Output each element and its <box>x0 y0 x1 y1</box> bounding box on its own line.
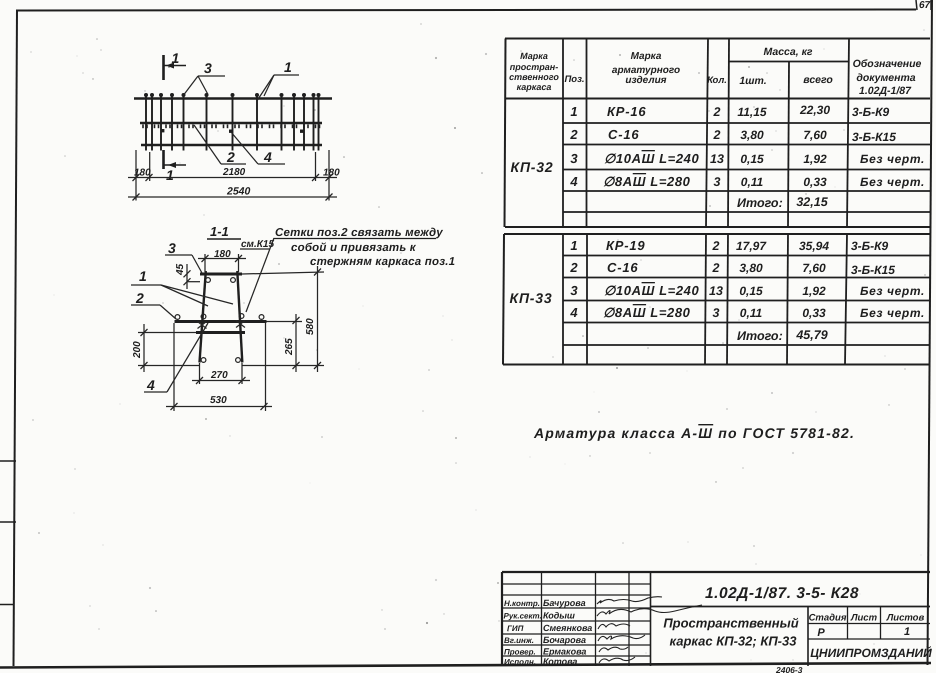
svg-text:580: 580 <box>305 318 316 335</box>
svg-text:КР-16: КР-16 <box>607 104 646 119</box>
svg-text:Без черт.: Без черт. <box>860 175 925 189</box>
svg-text:Кодыш: Кодыш <box>543 611 575 621</box>
svg-text:1,92: 1,92 <box>802 284 826 298</box>
svg-text:32,15: 32,15 <box>796 195 828 209</box>
svg-text:3: 3 <box>714 175 721 189</box>
svg-text:Стадия: Стадия <box>809 613 847 624</box>
svg-text:Вг.инж.: Вг.инж. <box>504 636 534 645</box>
svg-text:1: 1 <box>172 50 180 66</box>
svg-text:стержням каркаса поз.1: стержням каркаса поз.1 <box>310 256 455 268</box>
svg-text:каркаса: каркаса <box>517 82 552 92</box>
svg-text:180: 180 <box>323 168 340 179</box>
svg-text:КП-33: КП-33 <box>510 290 553 306</box>
svg-text:2: 2 <box>712 239 720 253</box>
svg-text:7,60: 7,60 <box>802 261 826 275</box>
svg-text:1,92: 1,92 <box>803 152 827 166</box>
svg-text:КП-32: КП-32 <box>511 159 554 175</box>
svg-text:22,30: 22,30 <box>799 103 830 117</box>
svg-text:Кол.: Кол. <box>707 75 727 86</box>
svg-text:Ермакова: Ермакова <box>543 647 586 657</box>
svg-text:1.02Д-1/87: 1.02Д-1/87 <box>859 85 912 97</box>
svg-text:1: 1 <box>904 626 910 638</box>
svg-text:2: 2 <box>135 290 144 306</box>
svg-text:Обозначение: Обозначение <box>853 58 922 70</box>
svg-text:Без черт.: Без черт. <box>860 152 925 166</box>
svg-text:Рук.сект.: Рук.сект. <box>504 612 542 621</box>
svg-text:1: 1 <box>570 104 577 119</box>
svg-text:Смеянкова: Смеянкова <box>543 623 592 633</box>
svg-text:0,11: 0,11 <box>740 306 763 320</box>
svg-text:4: 4 <box>263 149 272 165</box>
svg-text:Р: Р <box>817 627 825 639</box>
svg-text:0,33: 0,33 <box>802 306 826 320</box>
svg-text:Масса, кг: Масса, кг <box>764 46 813 58</box>
svg-text:изделия: изделия <box>625 75 666 86</box>
svg-text:3-Б-К15: 3-Б-К15 <box>851 263 895 277</box>
svg-text:ГИП: ГИП <box>507 624 524 633</box>
svg-text:Бочарова: Бочарова <box>543 635 586 645</box>
svg-text:Итого:: Итого: <box>737 196 783 210</box>
svg-text:0,33: 0,33 <box>803 175 827 189</box>
svg-text:3: 3 <box>168 240 176 256</box>
svg-text:7,60: 7,60 <box>803 128 827 142</box>
svg-text:11,15: 11,15 <box>737 105 766 119</box>
svg-text:Исполн.: Исполн. <box>504 658 536 667</box>
svg-text:0,11: 0,11 <box>741 175 764 189</box>
svg-text:180: 180 <box>214 249 231 260</box>
svg-text:2406-3: 2406-3 <box>775 665 803 673</box>
svg-text:Лист: Лист <box>850 613 878 624</box>
svg-text:3,80: 3,80 <box>739 261 763 275</box>
svg-text:всего: всего <box>803 74 833 86</box>
svg-text:ственного: ственного <box>509 72 559 82</box>
svg-text:2: 2 <box>713 128 721 142</box>
svg-text:0,15: 0,15 <box>739 284 763 298</box>
svg-text:0,15: 0,15 <box>740 152 764 166</box>
svg-text:Итого:: Итого: <box>737 329 783 343</box>
svg-text:2: 2 <box>713 105 721 119</box>
svg-text:1: 1 <box>284 59 292 75</box>
svg-text:1шт.: 1шт. <box>739 75 766 87</box>
svg-text:∅8АШ L=280: ∅8АШ L=280 <box>603 174 691 189</box>
svg-text:КР-19: КР-19 <box>606 238 645 253</box>
svg-text:С-16: С-16 <box>607 260 638 275</box>
svg-text:3: 3 <box>570 151 578 166</box>
svg-text:1.02Д-1/87. 3-5- К28: 1.02Д-1/87. 3-5- К28 <box>705 585 859 602</box>
svg-text:Листов: Листов <box>886 613 925 624</box>
svg-text:45,79: 45,79 <box>795 328 827 342</box>
svg-text:С-16: С-16 <box>608 127 639 142</box>
svg-text:Провер.: Провер. <box>504 648 536 657</box>
svg-text:2: 2 <box>712 261 720 275</box>
svg-text:3-Б-К9: 3-Б-К9 <box>852 105 890 119</box>
svg-text:Марка: Марка <box>520 51 548 61</box>
svg-text:35,94: 35,94 <box>799 239 829 253</box>
svg-text:3-Б-К15: 3-Б-К15 <box>852 130 896 144</box>
svg-text:4: 4 <box>569 174 578 189</box>
svg-text:530: 530 <box>210 395 227 406</box>
svg-text:3: 3 <box>713 306 720 320</box>
svg-text:2540: 2540 <box>226 186 251 198</box>
svg-text:17,97: 17,97 <box>736 239 767 253</box>
svg-text:4: 4 <box>569 305 578 320</box>
svg-text:Марка: Марка <box>631 51 662 62</box>
svg-text:3,80: 3,80 <box>740 128 764 142</box>
svg-text:1: 1 <box>166 167 174 183</box>
svg-text:1: 1 <box>570 238 577 253</box>
svg-text:каркас КП-32; КП-33: каркас КП-32; КП-33 <box>670 634 798 649</box>
svg-text:Н.контр.: Н.контр. <box>504 599 540 608</box>
svg-text:2: 2 <box>226 149 235 165</box>
svg-text:1-1: 1-1 <box>210 224 229 239</box>
svg-text:Пространственный: Пространственный <box>663 616 798 631</box>
svg-text:265: 265 <box>284 338 295 356</box>
svg-text:Без черт.: Без черт. <box>860 284 925 298</box>
svg-text:13: 13 <box>709 284 723 298</box>
svg-text:3-Б-К9: 3-Б-К9 <box>851 239 889 253</box>
svg-text:180: 180 <box>134 168 151 179</box>
svg-text:1: 1 <box>139 268 147 284</box>
svg-text:13: 13 <box>710 152 724 166</box>
svg-text:Бачурова: Бачурова <box>543 598 586 608</box>
svg-text:Сетки поз.2 связать между: Сетки поз.2 связать между <box>275 227 443 239</box>
svg-text:2: 2 <box>569 127 578 142</box>
svg-text:ЦНИИПРОМЗДАНИЙ: ЦНИИПРОМЗДАНИЙ <box>810 646 932 660</box>
svg-text:4: 4 <box>146 377 155 393</box>
svg-text:Без черт.: Без черт. <box>860 306 925 320</box>
svg-text:45: 45 <box>175 263 186 276</box>
svg-text:собой и привязать к: собой и привязать к <box>291 242 417 254</box>
svg-text:270: 270 <box>210 370 228 381</box>
svg-text:документа: документа <box>856 72 915 84</box>
svg-text:3: 3 <box>204 60 212 76</box>
svg-text:3: 3 <box>570 283 578 298</box>
svg-text:∅10АШ L=240: ∅10АШ L=240 <box>604 283 700 298</box>
svg-text:Арматура класса А-Ш по: Арматура класса А-Ш по ГОСТ 5781-82. <box>533 425 855 441</box>
svg-text:Поз.: Поз. <box>564 74 584 85</box>
svg-text:∅8АШ L=280: ∅8АШ L=280 <box>603 305 691 320</box>
svg-text:простран-: простран- <box>510 62 558 72</box>
svg-text:67: 67 <box>919 0 931 11</box>
svg-text:Котова: Котова <box>543 657 577 667</box>
svg-text:200: 200 <box>132 341 143 359</box>
svg-text:2180: 2180 <box>222 167 246 178</box>
svg-text:∅10АШ L=240: ∅10АШ L=240 <box>604 151 700 166</box>
svg-text:2: 2 <box>569 260 578 275</box>
